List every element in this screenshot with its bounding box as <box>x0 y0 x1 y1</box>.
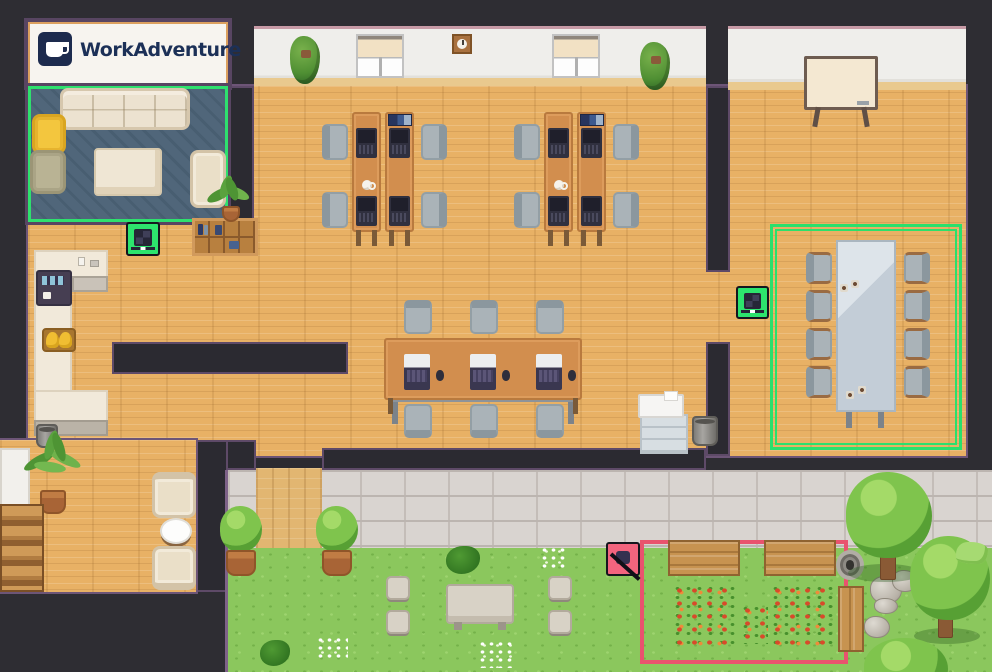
office-chair <box>322 124 348 160</box>
office-chair <box>404 404 432 438</box>
reading-armchair <box>152 472 196 518</box>
window <box>356 34 404 78</box>
office-back-wall <box>254 26 706 86</box>
flower-bed <box>672 584 736 646</box>
sofa <box>60 88 190 130</box>
rock <box>874 598 898 614</box>
book-stack <box>388 114 412 126</box>
computer-mouse <box>436 370 444 381</box>
office-chair <box>536 404 564 438</box>
computer-mouse <box>568 370 576 381</box>
logo-mug-tile <box>38 32 72 66</box>
stone-stool <box>386 576 410 600</box>
office-chair <box>421 192 447 228</box>
wall-clock <box>452 34 472 54</box>
tree <box>846 472 932 558</box>
garden-bench <box>668 540 740 576</box>
laptop <box>356 128 377 158</box>
wall-door-left <box>226 440 256 470</box>
plant-pot <box>222 206 240 222</box>
coffee-mug-icon <box>46 42 63 57</box>
garden-bench <box>838 586 864 652</box>
office-chair <box>514 124 540 160</box>
bananas <box>46 332 59 348</box>
counter-item <box>78 257 85 266</box>
counter-item <box>90 260 99 267</box>
meeting-chair <box>806 252 832 284</box>
potted-palm <box>22 434 86 514</box>
flower-bed <box>740 604 768 644</box>
laptop <box>356 196 377 226</box>
garden-bench <box>764 540 836 576</box>
logo-sign-panel: WorkAdventure <box>28 22 228 86</box>
meeting-chair <box>806 366 832 398</box>
potted-palm <box>206 182 252 224</box>
office-chair <box>404 300 432 334</box>
stone-stool <box>386 610 410 634</box>
meeting-chair <box>904 252 930 284</box>
laptop <box>581 196 602 226</box>
reading-armchair <box>152 546 196 590</box>
book <box>215 225 222 235</box>
yellow-armchair <box>32 114 66 154</box>
white-flowers <box>478 640 514 668</box>
meeting-table <box>836 240 896 412</box>
office-chair <box>613 192 639 228</box>
coffee-cup <box>840 284 848 292</box>
laptop-icon <box>134 229 152 246</box>
computer-mouse <box>502 370 510 381</box>
entrance-deck[interactable] <box>256 460 322 548</box>
wall-middle-band <box>112 342 348 374</box>
office-chair <box>470 300 498 334</box>
book <box>229 241 239 249</box>
laptop <box>536 354 562 390</box>
book-stack <box>580 114 604 126</box>
laptop <box>389 196 410 226</box>
kitchen-counter-bottom <box>34 390 108 422</box>
kitchen-shelf <box>72 276 108 292</box>
potted-tree-canopy <box>316 506 358 552</box>
meeting-tile-east[interactable] <box>736 286 769 319</box>
coffee-mug <box>362 180 372 190</box>
meeting-chair <box>904 366 930 398</box>
whiteboard[interactable] <box>804 56 878 110</box>
office-chair <box>514 192 540 228</box>
white-flowers <box>540 546 568 568</box>
coffee-cup <box>846 391 854 399</box>
bananas <box>59 332 72 348</box>
potted-tree-canopy <box>220 506 262 552</box>
meeting-chair <box>806 290 832 322</box>
office-chair <box>536 300 564 334</box>
printer <box>638 394 684 418</box>
workadventure-office-map[interactable]: WorkAdventure <box>0 0 992 672</box>
grass-tuft <box>956 542 988 564</box>
table-leg <box>846 412 852 428</box>
laptop <box>404 354 430 390</box>
office-chair <box>322 192 348 228</box>
coffee-mug <box>554 180 564 190</box>
laptop <box>470 354 496 390</box>
stairs[interactable] <box>0 504 44 592</box>
office-chair <box>613 124 639 160</box>
wall-office-right-upper <box>706 86 730 272</box>
laptop <box>548 196 569 226</box>
stone-picnic-table <box>446 584 514 624</box>
office-chair <box>470 404 498 438</box>
window <box>552 34 600 78</box>
table-leg <box>878 412 884 428</box>
meeting-chair <box>806 328 832 360</box>
coffee-table <box>94 148 162 196</box>
meeting-chair <box>904 290 930 322</box>
meeting-chair <box>904 328 930 360</box>
whiteboard-eraser <box>857 101 869 105</box>
baseboard <box>254 78 706 86</box>
laptop <box>548 128 569 158</box>
coffee-machine[interactable] <box>36 270 72 306</box>
book <box>198 224 203 235</box>
olive-armchair <box>30 150 66 194</box>
trash-bin <box>692 416 718 446</box>
round-side-table <box>160 518 192 544</box>
book <box>204 225 208 235</box>
rock <box>864 616 890 638</box>
laptop-icon <box>744 293 761 309</box>
silent-zone-tile[interactable] <box>606 542 640 576</box>
office-chair <box>421 124 447 160</box>
meeting-tile-west[interactable] <box>126 222 160 256</box>
coffee-cup <box>858 386 866 394</box>
laptop <box>581 128 602 158</box>
tree-pot <box>322 550 352 576</box>
coffee-cup <box>851 280 859 288</box>
white-flowers <box>316 636 348 662</box>
logo-text: WorkAdventure <box>80 41 241 60</box>
drawer-cabinet <box>640 414 688 454</box>
laptop <box>389 128 410 158</box>
stone-stool <box>548 576 572 600</box>
tree-pot <box>226 550 256 576</box>
stone-stool <box>548 610 572 634</box>
flower-bed <box>770 584 834 646</box>
